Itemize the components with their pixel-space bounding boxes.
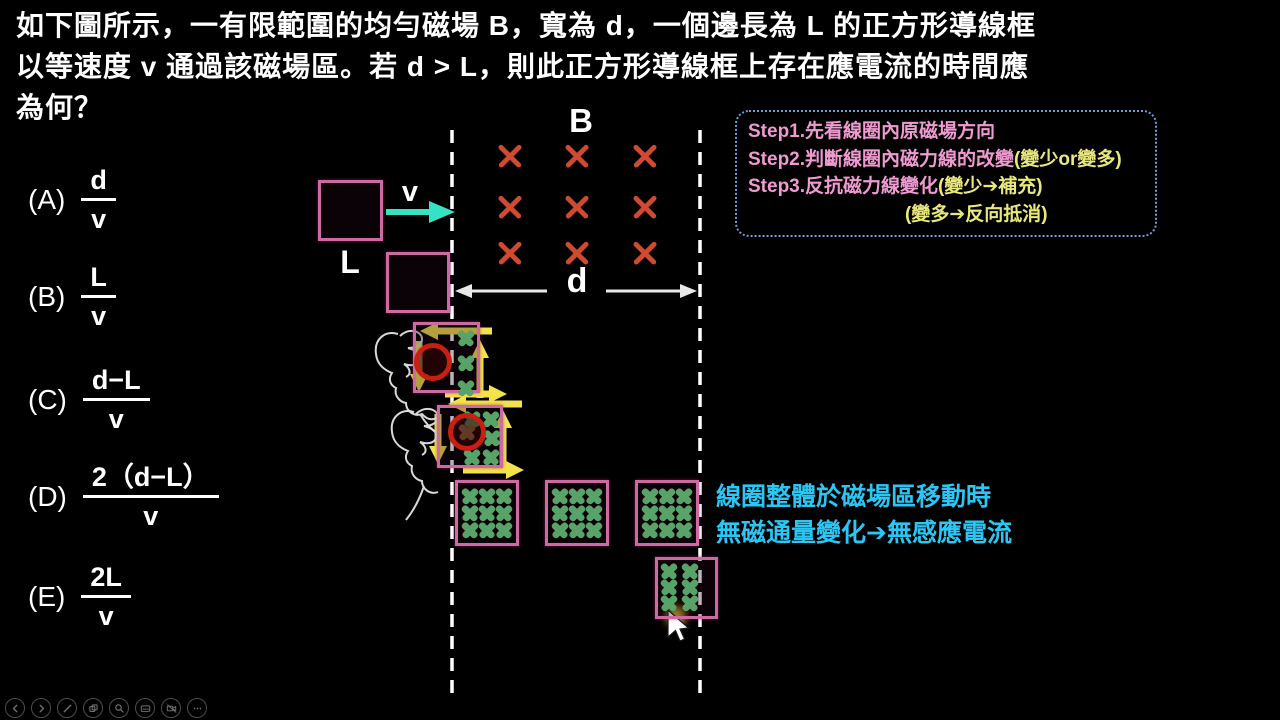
- step-2-main: Step2.判斷線圈內磁力線的改變: [748, 149, 1014, 170]
- no-induced-current-note: 線圈整體於磁場區移動時 無磁通量變化➔無感應電流: [716, 479, 1012, 551]
- fraction-bar: [83, 398, 150, 401]
- option-e: (E) 2L v: [28, 562, 131, 631]
- velocity-label: v: [402, 176, 418, 209]
- problem-line-2: 以等速度 v 通過該磁場區。若 d > L，則此正方形導線框上存在應電流的時間應: [16, 46, 1036, 87]
- copy-button[interactable]: [83, 698, 103, 718]
- fraction-bar: [81, 198, 116, 201]
- step-3-paren-2: (變多➔反向抵消): [905, 201, 1144, 229]
- induced-flux-dot-icon: [448, 413, 486, 451]
- field-cross-icon: [624, 186, 666, 228]
- step-3-paren: (變少➔補充): [938, 176, 1043, 197]
- more-button[interactable]: [187, 698, 207, 718]
- step-2-paren: (變少or變多): [1014, 149, 1122, 170]
- option-b: (B) L v: [28, 262, 116, 331]
- whiteboard-canvas: 如下圖所示，一有限範圍的均勻磁場 B，寬為 d，一個邊長為 L 的正方形導線框 …: [0, 0, 1280, 720]
- option-a: (A) d v: [28, 165, 116, 234]
- induced-flux-dot-icon: [414, 343, 452, 381]
- steps-box: Step1.先看線圈內原磁場方向 Step2.判斷線圈內磁力線的改變(變少or變…: [735, 110, 1157, 237]
- field-cross-icon: [624, 232, 666, 274]
- fraction-bar: [81, 295, 116, 298]
- option-d-denominator: v: [143, 501, 158, 531]
- back-button[interactable]: [5, 698, 25, 718]
- step-1: Step1.先看線圈內原磁場方向: [748, 118, 1144, 146]
- forward-button[interactable]: [31, 698, 51, 718]
- option-c-denominator: v: [109, 404, 124, 434]
- option-a-fraction: d v: [81, 165, 116, 234]
- option-b-numerator: L: [81, 262, 116, 292]
- field-cross-icon: [489, 232, 531, 274]
- field-cross-icon: [556, 186, 598, 228]
- wire-loop-outside: [318, 180, 383, 241]
- option-e-numerator: 2L: [81, 562, 131, 592]
- option-a-label: (A): [28, 184, 65, 216]
- field-cross-icon: [556, 135, 598, 177]
- player-toolbar: [5, 698, 207, 718]
- subtitles-button[interactable]: [135, 698, 155, 718]
- option-e-fraction: 2L v: [81, 562, 131, 631]
- field-label: B: [569, 102, 593, 140]
- fraction-bar: [83, 495, 219, 498]
- option-d-fraction: 2（d−L） v: [83, 462, 219, 531]
- option-c-label: (C): [28, 384, 67, 416]
- note-line-2: 無磁通量變化➔無感應電流: [716, 515, 1012, 551]
- option-d-label: (D): [28, 481, 67, 513]
- right-hand-rule-sketch-2: [392, 409, 438, 520]
- option-a-denominator: v: [91, 204, 106, 234]
- option-b-fraction: L v: [81, 262, 116, 331]
- option-c-fraction: d−L v: [83, 365, 150, 434]
- step-3: Step3.反抗磁力線變化(變少➔補充): [748, 173, 1144, 201]
- option-d: (D) 2（d−L） v: [28, 462, 219, 531]
- loop-side-label: L: [340, 244, 360, 281]
- velocity-arrow: [386, 201, 455, 223]
- zoom-button[interactable]: [109, 698, 129, 718]
- field-cross-icon: [489, 135, 531, 177]
- option-e-denominator: v: [99, 601, 114, 631]
- pen-tool-button[interactable]: [57, 698, 77, 718]
- option-d-numerator: 2（d−L）: [83, 462, 219, 492]
- option-c: (C) d−L v: [28, 365, 150, 434]
- field-cross-icon: [624, 135, 666, 177]
- wire-loop-at-boundary: [386, 252, 450, 313]
- problem-line-1: 如下圖所示，一有限範圍的均勻磁場 B，寬為 d，一個邊長為 L 的正方形導線框: [16, 5, 1036, 46]
- option-e-label: (E): [28, 581, 65, 613]
- option-c-numerator: d−L: [83, 365, 150, 395]
- note-line-1: 線圈整體於磁場區移動時: [716, 479, 1012, 515]
- step-3-main: Step3.反抗磁力線變化: [748, 176, 938, 197]
- video-off-button[interactable]: [161, 698, 181, 718]
- field-cross-icon: [556, 232, 598, 274]
- option-b-label: (B): [28, 281, 65, 313]
- step-2: Step2.判斷線圈內磁力線的改變(變少or變多): [748, 146, 1144, 174]
- option-a-numerator: d: [81, 165, 116, 195]
- option-b-denominator: v: [91, 301, 106, 331]
- fraction-bar: [81, 595, 131, 598]
- field-cross-icon: [489, 186, 531, 228]
